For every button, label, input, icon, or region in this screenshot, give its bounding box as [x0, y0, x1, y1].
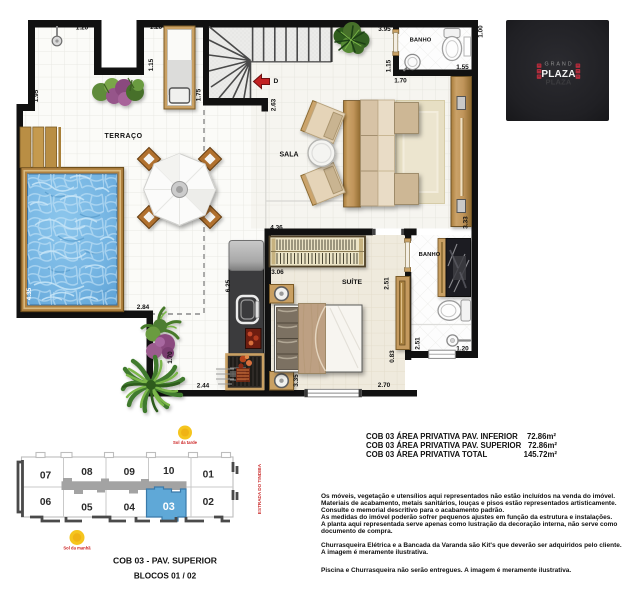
svg-text:02: 02: [203, 497, 215, 508]
svg-text:1.20: 1.20: [150, 24, 163, 31]
svg-text:COB 03 - PAV. SUPERIOR: COB 03 - PAV. SUPERIOR: [113, 556, 218, 566]
svg-text:3.35: 3.35: [293, 374, 300, 387]
svg-text:ESTRADA DO TINDIBA: ESTRADA DO TINDIBA: [257, 463, 262, 514]
svg-text:04: 04: [124, 503, 136, 514]
svg-text:SUÍTE: SUÍTE: [342, 277, 362, 286]
svg-text:Materiais de acabamento, metai: Materiais de acabamento, metais sanitári…: [321, 500, 617, 507]
svg-text:09: 09: [124, 467, 136, 478]
svg-text:Os móveis, vegetação e utensíl: Os móveis, vegetação e utensílios aqui r…: [321, 493, 615, 500]
svg-text:2.51: 2.51: [414, 337, 421, 350]
svg-text:4.35: 4.35: [26, 287, 33, 300]
svg-text:4.36: 4.36: [270, 225, 283, 232]
svg-text:Consulte o memorial descritivo: Consulte o memorial descritivo para o ac…: [321, 507, 504, 514]
svg-text:10: 10: [163, 466, 175, 477]
svg-text:3.33: 3.33: [463, 216, 470, 229]
svg-text:Piscina e Churrasqueira não se: Piscina e Churrasqueira não serão entreg…: [321, 567, 571, 574]
svg-text:07: 07: [40, 471, 52, 482]
svg-text:1.70: 1.70: [167, 351, 174, 364]
svg-text:2.44: 2.44: [197, 383, 210, 390]
svg-text:145.72m²: 145.72m²: [524, 450, 558, 459]
svg-text:3.06: 3.06: [271, 269, 284, 276]
svg-text:Sol da tarde: Sol da tarde: [173, 440, 198, 445]
svg-text:1.00: 1.00: [478, 25, 485, 38]
svg-text:1.75: 1.75: [195, 88, 202, 101]
svg-text:A imagem é meramente ilustrati: A imagem é meramente ilustrativa.: [321, 549, 428, 556]
svg-text:documento de compra.: documento de compra.: [321, 528, 393, 535]
svg-text:Sol da manhã: Sol da manhã: [63, 546, 91, 551]
svg-text:1.95: 1.95: [33, 89, 40, 102]
svg-text:01: 01: [203, 470, 215, 481]
svg-text:As medidas do imóvel poderão s: As medidas do imóvel poderão sofrer pequ…: [321, 514, 612, 521]
svg-text:Churrasqueira Elétrica e a Ban: Churrasqueira Elétrica e a Bancada da Va…: [321, 542, 622, 549]
svg-text:A planta aqui representada ser: A planta aqui representada serve apenas …: [321, 521, 617, 528]
svg-text:1.15: 1.15: [386, 59, 393, 72]
svg-text:0.83: 0.83: [389, 350, 396, 363]
svg-text:BLOCOS 01 / 02: BLOCOS 01 / 02: [134, 572, 197, 581]
svg-text:TERRAÇO: TERRAÇO: [104, 133, 142, 140]
svg-text:05: 05: [81, 503, 93, 514]
svg-text:COB 03 ÁREA PRIVATIVA PAV. SUP: COB 03 ÁREA PRIVATIVA PAV. SUPERIOR: [366, 441, 522, 450]
svg-text:2.84: 2.84: [137, 304, 150, 311]
svg-text:GRAND: GRAND: [545, 62, 574, 68]
svg-text:BANHO: BANHO: [419, 252, 441, 258]
svg-text:72.86m²: 72.86m²: [528, 441, 557, 450]
svg-text:BANHO: BANHO: [410, 38, 432, 44]
svg-text:2.63: 2.63: [270, 98, 277, 111]
svg-text:1.20: 1.20: [76, 25, 89, 32]
svg-text:SALA: SALA: [279, 152, 298, 159]
svg-text:PLAZA: PLAZA: [546, 78, 572, 87]
svg-text:COB 03 ÁREA PRIVATIVA TOTAL: COB 03 ÁREA PRIVATIVA TOTAL: [366, 450, 488, 459]
svg-text:2.70: 2.70: [378, 382, 391, 389]
svg-text:03: 03: [163, 501, 175, 513]
svg-text:1.70: 1.70: [394, 78, 407, 85]
svg-text:1.55: 1.55: [456, 64, 469, 71]
svg-text:COB 03 ÁREA PRIVATIVA PAV. INF: COB 03 ÁREA PRIVATIVA PAV. INFERIOR: [366, 432, 518, 441]
svg-text:06: 06: [40, 497, 52, 508]
svg-text:72.86m²: 72.86m²: [527, 432, 556, 441]
svg-text:2.51: 2.51: [383, 277, 390, 290]
svg-text:1.15: 1.15: [148, 58, 155, 71]
svg-text:D: D: [274, 78, 279, 85]
svg-text:08: 08: [81, 467, 93, 478]
svg-text:6.25: 6.25: [225, 279, 232, 292]
svg-text:1.20: 1.20: [456, 346, 469, 353]
svg-text:3.95: 3.95: [378, 26, 391, 33]
